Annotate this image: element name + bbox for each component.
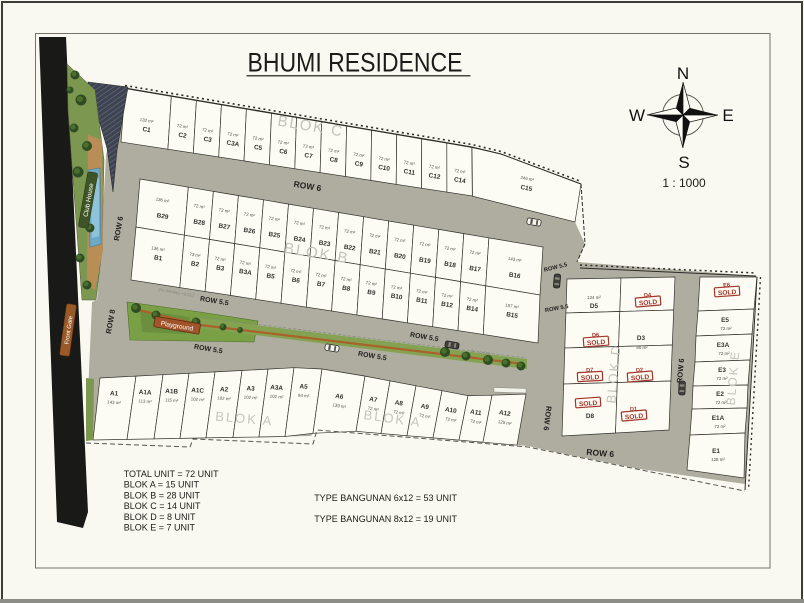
svg-text:A6: A6 <box>335 393 345 401</box>
svg-text:BLOK B = 28 UNIT: BLOK B = 28 UNIT <box>124 490 201 500</box>
svg-text:113 m²: 113 m² <box>138 398 152 404</box>
svg-text:E1: E1 <box>712 448 720 455</box>
svg-text:B3: B3 <box>216 264 226 272</box>
svg-text:A1A: A1A <box>138 389 152 397</box>
svg-text:102 m²: 102 m² <box>191 396 206 402</box>
svg-text:B8: B8 <box>342 285 352 293</box>
svg-text:E2: E2 <box>716 391 724 398</box>
svg-text:102 m²: 102 m² <box>217 395 232 401</box>
svg-text:D2: D2 <box>636 368 644 375</box>
svg-text:B2: B2 <box>190 260 200 268</box>
svg-text:W: W <box>629 106 645 125</box>
svg-text:D3: D3 <box>637 335 646 342</box>
svg-text:D7: D7 <box>586 368 593 374</box>
svg-text:BLOK C = 14 UNIT: BLOK C = 14 UNIT <box>124 501 201 511</box>
svg-text:B6: B6 <box>291 277 301 285</box>
svg-text:E6: E6 <box>723 283 730 289</box>
svg-text:E3A: E3A <box>717 342 730 349</box>
svg-text:E: E <box>722 106 733 125</box>
svg-text:C6: C6 <box>279 148 289 156</box>
svg-text:A3: A3 <box>246 385 255 393</box>
svg-text:A7: A7 <box>369 396 379 404</box>
svg-text:D8: D8 <box>586 413 595 420</box>
svg-text:A3A: A3A <box>270 384 284 392</box>
svg-text:C2: C2 <box>178 132 188 140</box>
svg-text:A1C: A1C <box>191 387 205 395</box>
svg-text:C9: C9 <box>354 160 364 168</box>
svg-text:S: S <box>678 153 689 172</box>
svg-text:A5: A5 <box>299 383 308 391</box>
svg-text:SOLD: SOLD <box>587 339 606 347</box>
svg-text:C5: C5 <box>253 144 263 152</box>
svg-text:SOLD: SOLD <box>581 374 600 382</box>
svg-text:72 m²: 72 m² <box>720 326 732 331</box>
svg-text:D5: D5 <box>590 303 599 310</box>
svg-text:A1B: A1B <box>165 388 179 396</box>
svg-text:B9: B9 <box>367 289 377 297</box>
svg-text:102 m²: 102 m² <box>270 394 285 400</box>
svg-text:C3: C3 <box>203 136 213 144</box>
svg-text:A1: A1 <box>110 390 119 398</box>
svg-text:SOLD: SOLD <box>579 400 598 408</box>
svg-text:D1: D1 <box>630 407 638 414</box>
svg-text:102 m²: 102 m² <box>244 395 259 401</box>
svg-text:115 m²: 115 m² <box>165 397 179 403</box>
svg-text:1 : 1000: 1 : 1000 <box>662 176 706 190</box>
svg-text:C7: C7 <box>304 152 314 160</box>
svg-text:94 m²: 94 m² <box>298 393 310 399</box>
svg-text:128 m²: 128 m² <box>711 457 725 462</box>
svg-text:A9: A9 <box>420 403 430 411</box>
svg-text:A2: A2 <box>220 386 229 394</box>
svg-text:B7: B7 <box>316 281 326 289</box>
svg-text:SOLD: SOLD <box>718 289 737 297</box>
svg-text:D6: D6 <box>592 333 600 339</box>
svg-text:BLOK E = 7 UNIT: BLOK E = 7 UNIT <box>124 523 196 533</box>
svg-text:N: N <box>677 64 689 83</box>
svg-text:BLOK A = 15 UNIT: BLOK A = 15 UNIT <box>124 480 200 490</box>
svg-text:C1: C1 <box>142 126 152 134</box>
svg-text:BLOK D = 8 UNIT: BLOK D = 8 UNIT <box>124 512 196 522</box>
svg-text:A8: A8 <box>394 399 404 407</box>
svg-text:C8: C8 <box>329 156 339 164</box>
svg-text:TOTAL UNIT = 72 UNIT: TOTAL UNIT = 72 UNIT <box>124 469 219 479</box>
svg-text:TYPE BANGUNAN 8x12 = 19 UNIT: TYPE BANGUNAN 8x12 = 19 UNIT <box>314 514 457 524</box>
svg-text:B5: B5 <box>266 272 276 280</box>
svg-text:124 m²: 124 m² <box>587 295 601 300</box>
svg-text:E5: E5 <box>721 317 729 324</box>
svg-text:80 m²: 80 m² <box>636 345 648 350</box>
svg-text:B1: B1 <box>153 254 163 262</box>
svg-text:BHUMI RESIDENCE: BHUMI RESIDENCE <box>248 48 463 78</box>
svg-text:143 m²: 143 m² <box>107 399 122 405</box>
svg-text:E1A: E1A <box>712 415 725 422</box>
svg-text:72 m²: 72 m² <box>714 424 726 429</box>
svg-text:TYPE BANGUNAN 6x12 = 53 UNIT: TYPE BANGUNAN 6x12 = 53 UNIT <box>314 493 457 503</box>
svg-text:E3: E3 <box>718 367 726 374</box>
